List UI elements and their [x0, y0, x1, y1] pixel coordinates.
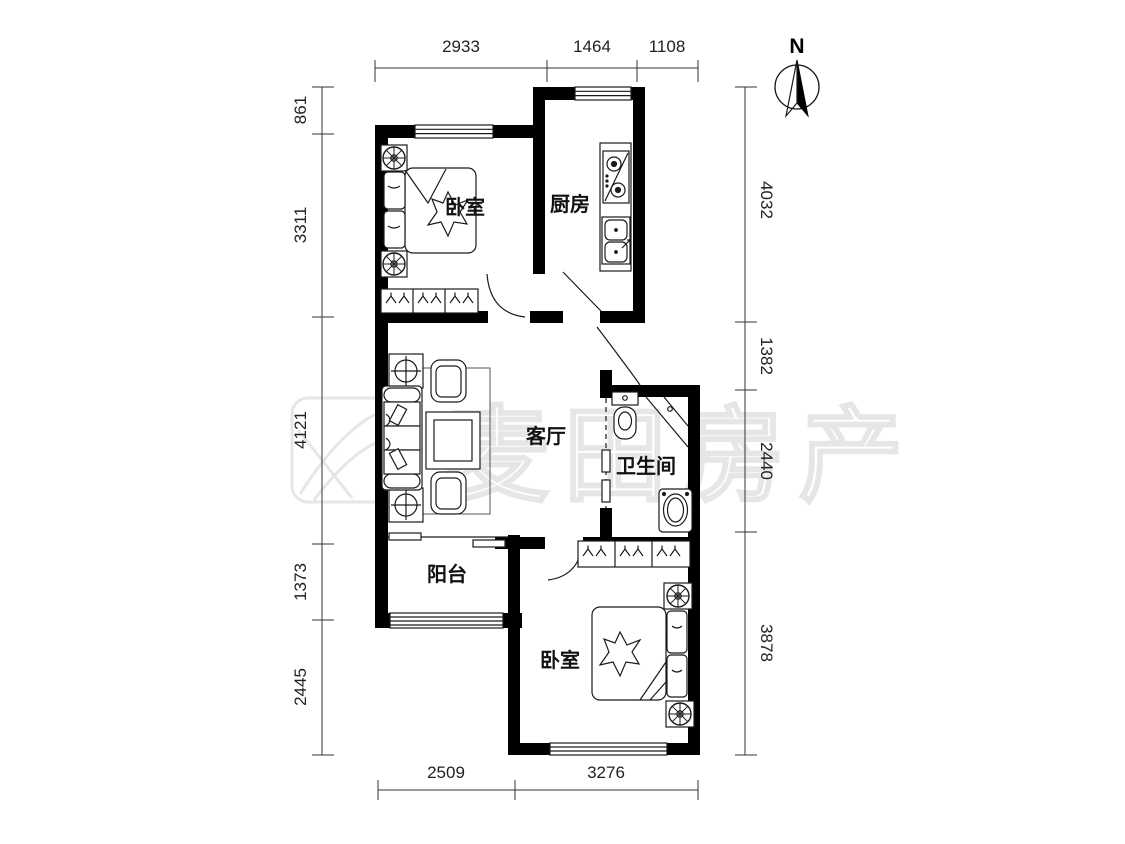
wall-balcony-cap-right — [503, 613, 522, 628]
dim-bottom-1: 2509 — [427, 763, 465, 782]
washing-machine-icon — [659, 489, 692, 532]
stove-icon — [603, 151, 629, 203]
wall-kitchen-left — [533, 87, 545, 274]
wall-bedroom2-left — [508, 535, 520, 755]
room-label-balcony: 阳台 — [427, 562, 467, 586]
lamp-icon — [667, 585, 689, 607]
window-kitchen — [575, 87, 631, 100]
room-label-kitchen: 厨房 — [550, 192, 590, 216]
wall-balcony-cap-left — [375, 613, 390, 628]
wall-kitchen-bottom — [600, 311, 645, 323]
wall-bedroom1-top-right — [493, 125, 545, 138]
window-bedroom1 — [415, 125, 493, 138]
sofa — [382, 386, 422, 490]
dim-bottom-2: 3276 — [587, 763, 625, 782]
dim-top-2: 1464 — [573, 37, 611, 56]
lamp-icon — [383, 147, 405, 169]
north-label: N — [789, 35, 804, 58]
wardrobe — [578, 541, 690, 567]
dim-left-2: 3311 — [291, 207, 310, 244]
dim-left-5: 2445 — [291, 668, 310, 706]
room-label-bathroom: 卫生间 — [616, 455, 676, 478]
coffee-table — [426, 412, 480, 469]
dim-right-4: 3878 — [757, 624, 776, 662]
wall-hall-bottom — [530, 311, 563, 323]
lamp-icon — [669, 703, 691, 725]
side-table — [389, 354, 423, 388]
wall-kitchen-right — [633, 87, 645, 323]
window-balcony — [390, 613, 503, 628]
toilet-icon — [612, 392, 638, 439]
floorplan-canvas: 麦田房产 — [0, 0, 1125, 844]
dim-left-4: 1373 — [291, 563, 310, 601]
wardrobe — [381, 289, 478, 313]
armchair — [431, 360, 466, 402]
armchair — [431, 472, 466, 514]
wall-bedroom2-bottom-left — [508, 743, 550, 755]
wall-bath-left-top-stub — [600, 370, 612, 398]
double-bed — [592, 607, 687, 700]
dim-right-2: 1382 — [757, 337, 776, 375]
dim-top-3: 1108 — [649, 37, 686, 56]
dim-top-1: 2933 — [442, 37, 480, 56]
sink-icon — [602, 217, 630, 264]
window-bedroom2 — [550, 743, 667, 755]
dim-right-1: 4032 — [757, 181, 776, 219]
dim-left-3: 4121 — [291, 411, 310, 449]
floorplan-page: 麦田房产 — [0, 0, 1125, 844]
wall-bedroom2-bottom-right — [667, 743, 700, 755]
dim-left-1: 861 — [291, 96, 310, 124]
room-label-living: 客厅 — [525, 424, 566, 448]
side-table — [389, 488, 423, 522]
wall-bath-left-bottom-stub — [600, 508, 612, 538]
room-label-bedroom2: 卧室 — [540, 648, 580, 672]
lamp-icon — [383, 253, 405, 275]
dim-right-3: 2440 — [757, 442, 776, 480]
room-label-bedroom1: 卧室 — [445, 195, 485, 219]
furniture-kitchen — [600, 143, 631, 271]
